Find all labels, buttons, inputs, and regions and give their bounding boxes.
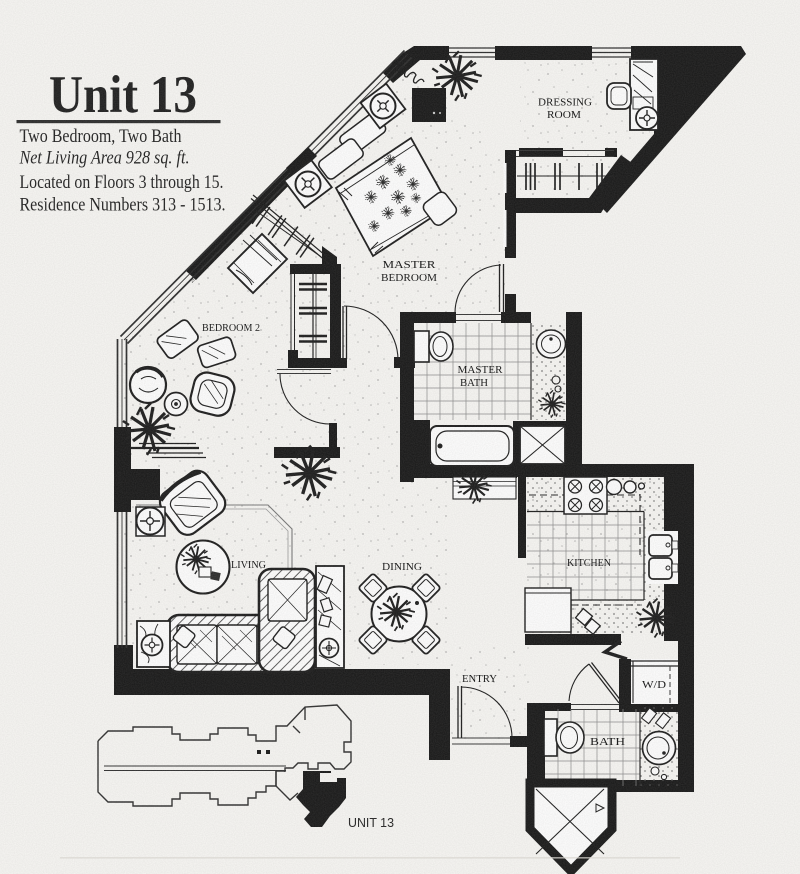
svg-text:MASTER: MASTER bbox=[383, 260, 436, 271]
svg-text:ENTRY: ENTRY bbox=[462, 674, 497, 685]
svg-text:DINING: DINING bbox=[382, 562, 422, 573]
svg-text:BEDROOM: BEDROOM bbox=[381, 273, 438, 284]
svg-text:LIVING: LIVING bbox=[231, 560, 266, 571]
svg-text:MASTER: MASTER bbox=[458, 365, 503, 376]
svg-text:BATH: BATH bbox=[590, 737, 626, 748]
svg-text:ROOM: ROOM bbox=[547, 110, 582, 121]
svg-text:BEDROOM 2: BEDROOM 2 bbox=[202, 323, 260, 334]
svg-text:DRESSING: DRESSING bbox=[538, 98, 592, 109]
svg-text:KITCHEN: KITCHEN bbox=[567, 558, 611, 569]
svg-text:BATH: BATH bbox=[460, 378, 488, 389]
svg-text:W/D: W/D bbox=[642, 680, 666, 691]
